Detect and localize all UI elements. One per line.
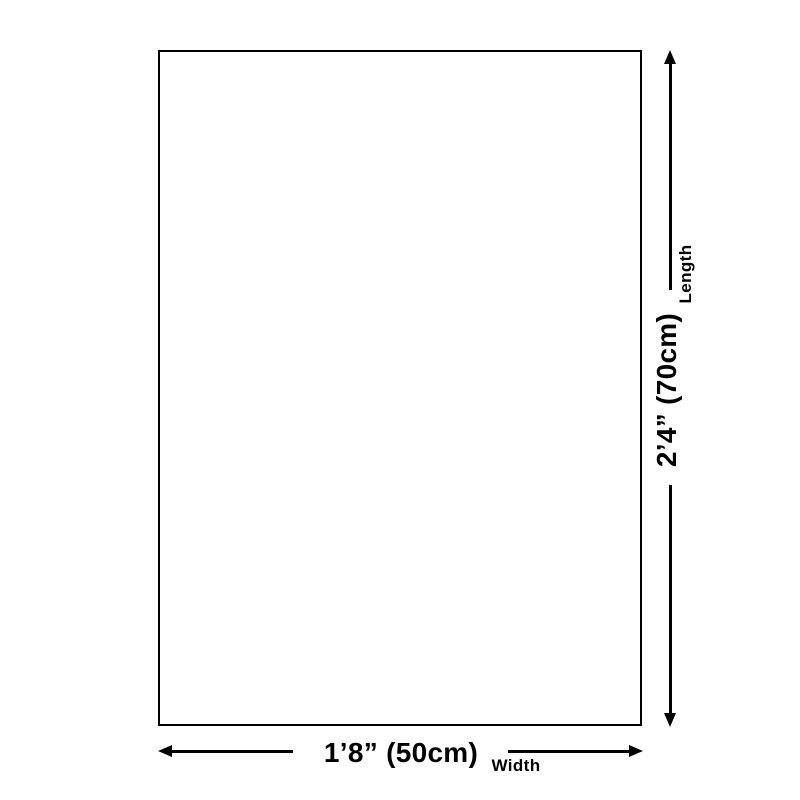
width-label: Width	[491, 756, 540, 776]
length-arrow-shaft-bottom	[669, 485, 672, 714]
width-arrow-shaft-right	[508, 750, 630, 753]
length-value: 2’4” (70cm)	[651, 313, 683, 467]
width-arrow-shaft-left	[170, 750, 293, 753]
length-arrow-shaft-top	[669, 62, 672, 290]
width-value: 1’8” (50cm)	[324, 737, 478, 769]
arrowhead-down-icon	[664, 713, 676, 727]
arrowhead-right-icon	[629, 745, 643, 757]
size-diagram: 2’4” (70cm) Length 1’8” (50cm) Width	[0, 0, 800, 800]
product-outline	[158, 50, 642, 726]
length-label: Length	[676, 244, 696, 303]
